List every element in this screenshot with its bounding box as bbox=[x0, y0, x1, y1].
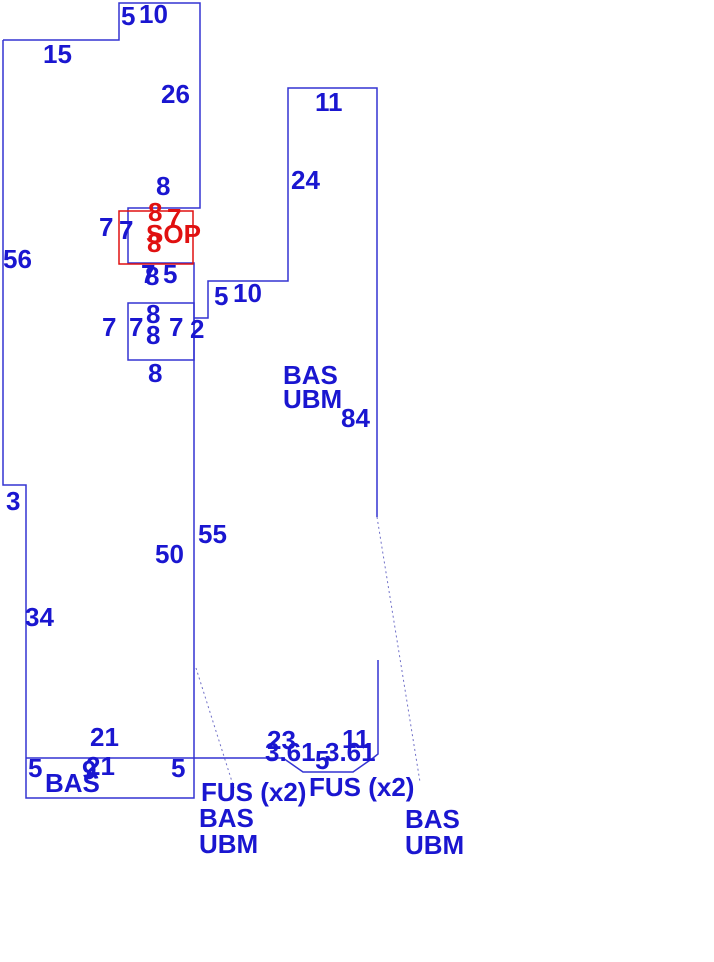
dimension-label: 7 bbox=[99, 214, 113, 240]
dimension-label: 5 bbox=[171, 755, 185, 781]
dimension-label: 7 bbox=[102, 314, 116, 340]
room-label-ubm: UBM bbox=[283, 386, 342, 412]
dimension-label: 26 bbox=[161, 81, 190, 107]
dimension-label: 3.61 bbox=[265, 739, 316, 765]
room-label-bas: BAS bbox=[405, 806, 460, 832]
dimension-label: 5 bbox=[121, 3, 135, 29]
dimension-label: 15 bbox=[43, 41, 72, 67]
dimension-label: 2 bbox=[190, 316, 204, 342]
dimension-label: 5 bbox=[163, 261, 177, 287]
dimension-label: 24 bbox=[291, 167, 320, 193]
room-label-fus: FUS (x2) bbox=[309, 774, 414, 800]
dimension-label: 7 bbox=[119, 217, 133, 243]
dimension-label: 11 bbox=[315, 89, 343, 115]
dimension-label: 55 bbox=[198, 521, 227, 547]
room-label-bas: BAS bbox=[45, 770, 100, 796]
dimension-label: 7 bbox=[169, 314, 183, 340]
dimension-label: 10 bbox=[139, 1, 168, 27]
floorplan-labels-layer: 510152685611247787SOP87855108877728BASUB… bbox=[0, 0, 714, 962]
dimension-label: 34 bbox=[25, 604, 54, 630]
dimension-label: 10 bbox=[233, 280, 262, 306]
dimension-label: 84 bbox=[341, 405, 370, 431]
dimension-label: 8 bbox=[146, 322, 160, 348]
floorplan-canvas: 510152685611247787SOP87855108877728BASUB… bbox=[0, 0, 714, 962]
room-label-fus: FUS (x2) bbox=[201, 779, 306, 805]
room-label-ubm: UBM bbox=[405, 832, 464, 858]
room-label-bas: BAS bbox=[199, 805, 254, 831]
dimension-label: 3.61 bbox=[325, 739, 376, 765]
dimension-label: 3 bbox=[6, 488, 20, 514]
dimension-label: 56 bbox=[3, 246, 32, 272]
dimension-label: 5 bbox=[214, 283, 228, 309]
dimension-label: 8 bbox=[156, 173, 170, 199]
dimension-label: 8 bbox=[148, 360, 162, 386]
dimension-label: 8 bbox=[147, 230, 161, 256]
room-label-ubm: UBM bbox=[199, 831, 258, 857]
dimension-label: 5 bbox=[28, 755, 42, 781]
dimension-label: 21 bbox=[90, 724, 119, 750]
dimension-label: 8 bbox=[145, 263, 159, 289]
dimension-label: 7 bbox=[129, 314, 143, 340]
dimension-label: 50 bbox=[155, 541, 184, 567]
